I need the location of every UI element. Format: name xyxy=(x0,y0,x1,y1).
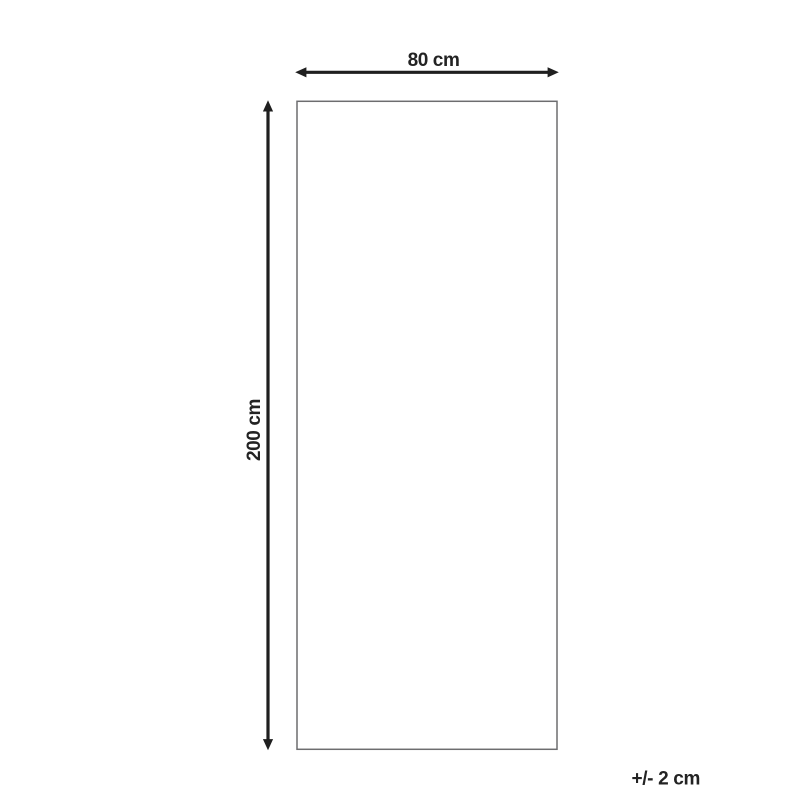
svg-text:80 cm: 80 cm xyxy=(408,50,460,71)
svg-text:200 cm: 200 cm xyxy=(244,399,265,461)
svg-text:+/- 2 cm: +/- 2 cm xyxy=(632,769,701,790)
